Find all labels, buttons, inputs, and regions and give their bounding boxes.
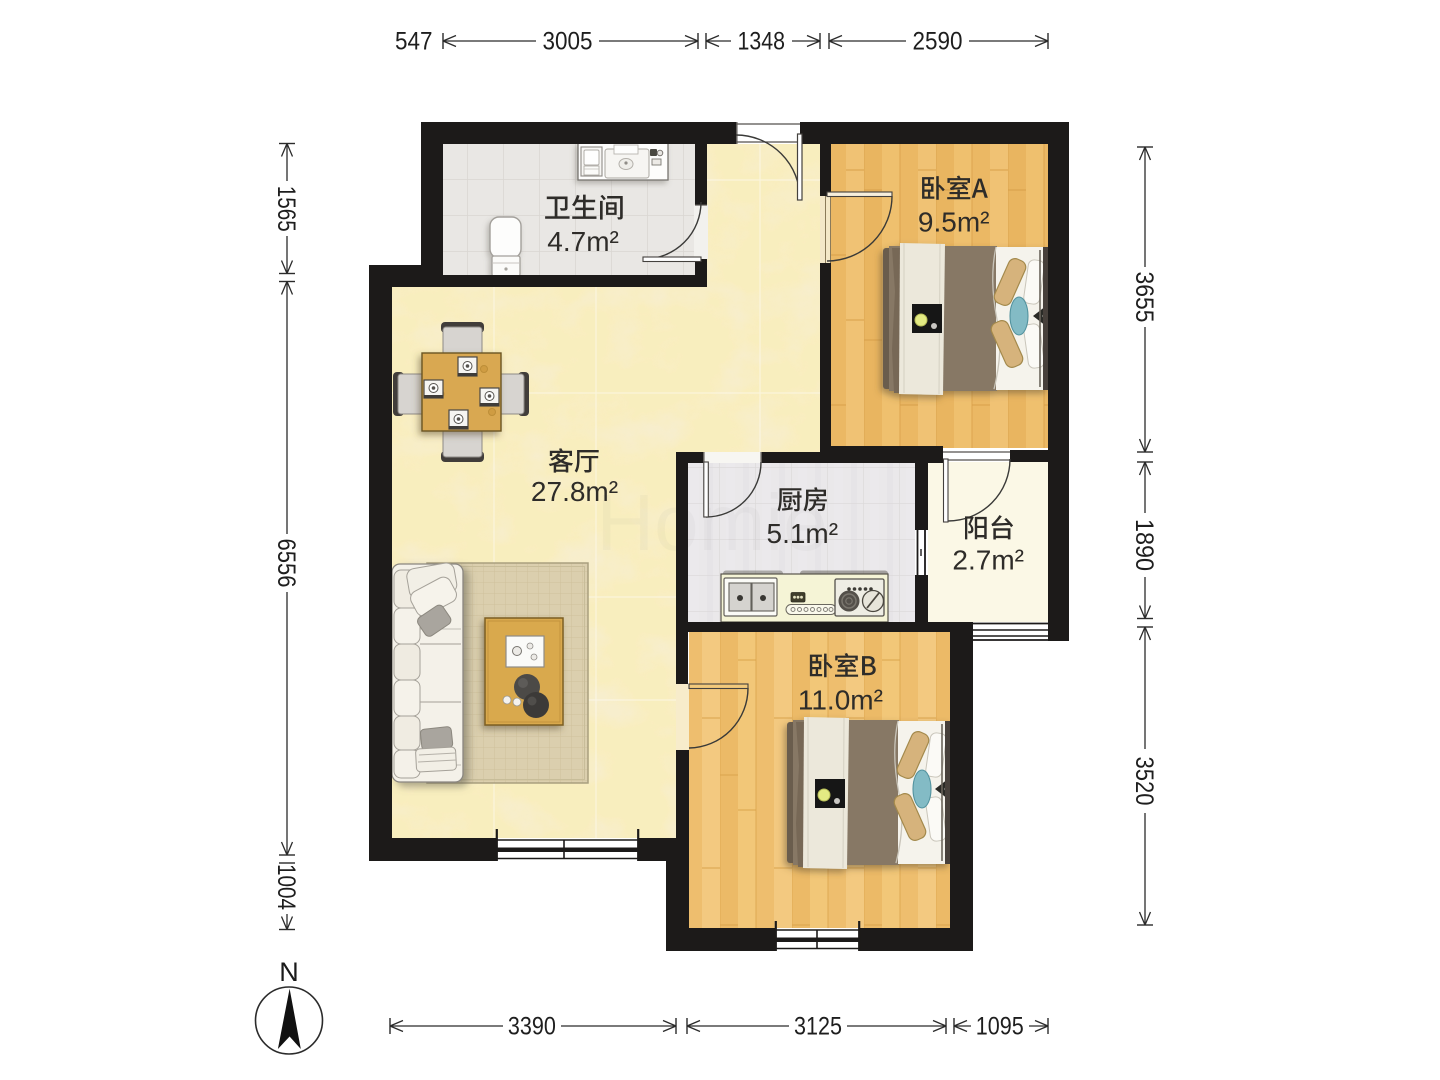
svg-text:1095: 1095 xyxy=(976,1013,1024,1041)
svg-text:2.7m²: 2.7m² xyxy=(952,545,1024,576)
svg-text:9.5m²: 9.5m² xyxy=(918,207,990,238)
svg-text:6556: 6556 xyxy=(272,539,300,588)
svg-text:3520: 3520 xyxy=(1130,757,1158,806)
svg-text:1004: 1004 xyxy=(272,864,300,910)
svg-text:2590: 2590 xyxy=(913,28,963,56)
svg-text:3390: 3390 xyxy=(508,1013,556,1041)
svg-text:4.7m²: 4.7m² xyxy=(547,226,619,257)
svg-text:11.0m²: 11.0m² xyxy=(798,685,883,716)
svg-text:N: N xyxy=(279,957,299,987)
svg-text:3655: 3655 xyxy=(1130,272,1158,323)
svg-text:1565: 1565 xyxy=(272,186,300,232)
svg-text:1348: 1348 xyxy=(738,28,786,56)
svg-text:547: 547 xyxy=(395,28,433,56)
svg-text:1890: 1890 xyxy=(1130,519,1158,571)
svg-text:27.8m²: 27.8m² xyxy=(531,476,618,507)
svg-text:3005: 3005 xyxy=(543,28,593,56)
svg-text:3125: 3125 xyxy=(794,1013,842,1041)
svg-text:5.1m²: 5.1m² xyxy=(767,518,839,549)
